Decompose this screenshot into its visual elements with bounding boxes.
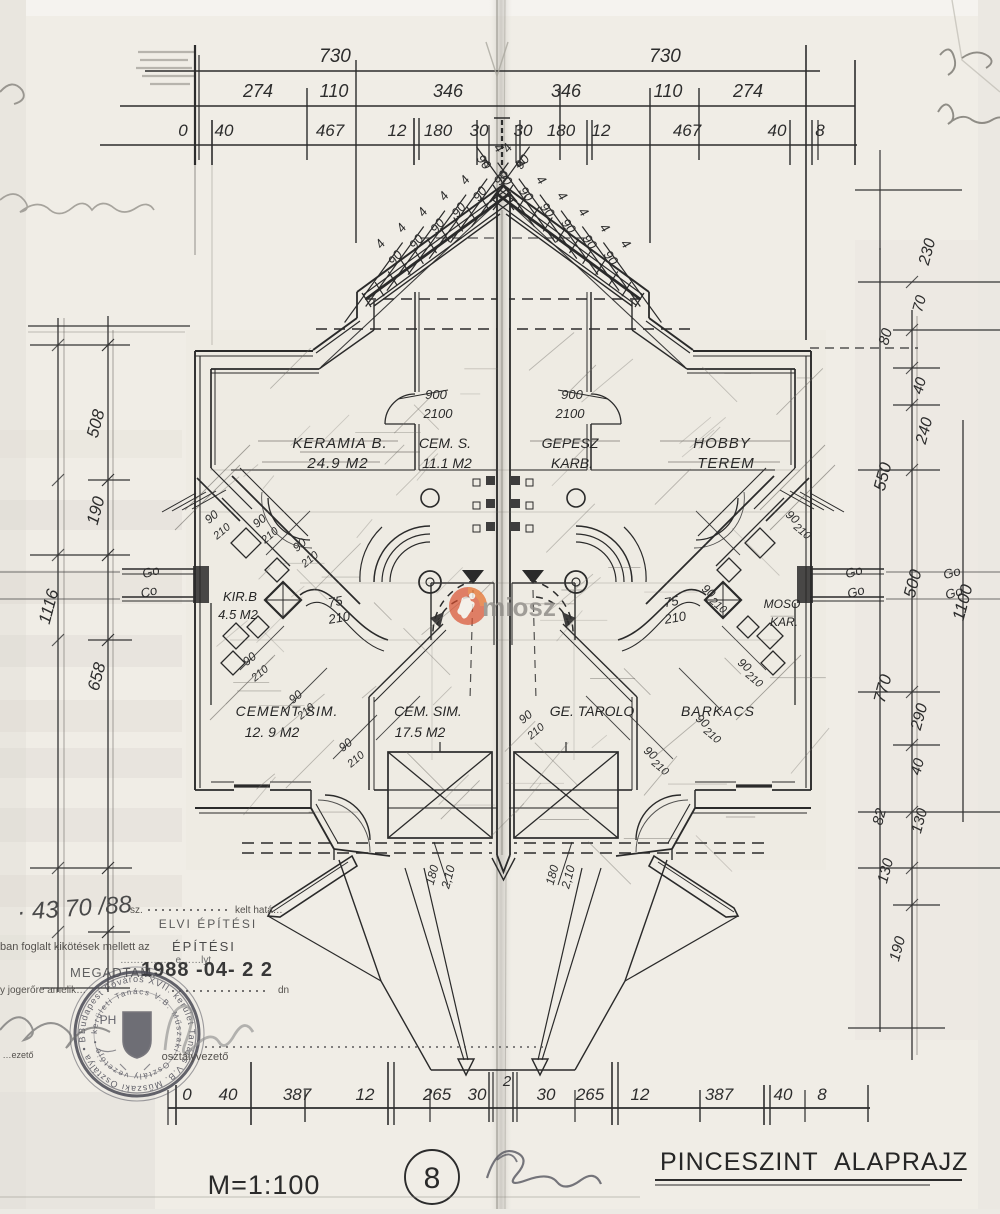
svg-text:110: 110: [654, 81, 683, 101]
svg-text:GEPESZ: GEPESZ: [542, 435, 599, 451]
svg-text:40: 40: [219, 1085, 238, 1104]
svg-text:2100: 2100: [423, 406, 454, 421]
svg-text:346: 346: [551, 81, 582, 101]
svg-text:387: 387: [705, 1085, 734, 1104]
svg-text:30: 30: [468, 1085, 487, 1104]
svg-text:900: 900: [561, 387, 583, 402]
svg-text:467: 467: [673, 121, 702, 140]
svg-text:12: 12: [631, 1085, 650, 1104]
svg-text:8: 8: [817, 1085, 827, 1104]
svg-text:40: 40: [215, 121, 234, 140]
svg-text:274: 274: [732, 81, 763, 101]
svg-text:274: 274: [242, 81, 273, 101]
svg-text:12: 12: [388, 121, 407, 140]
svg-text:y jogerőre amelik…: y jogerőre amelik…: [0, 985, 86, 996]
svg-text:2: 2: [502, 1073, 512, 1090]
svg-text:sz.: sz.: [130, 905, 143, 916]
svg-text:ELVI ÉPÍTÉSI: ELVI ÉPÍTÉSI: [159, 916, 257, 931]
svg-text:11.1 M2: 11.1 M2: [422, 455, 472, 471]
svg-text:KARB.: KARB.: [551, 455, 593, 471]
svg-text:40: 40: [774, 1085, 793, 1104]
svg-text:30: 30: [537, 1085, 556, 1104]
svg-text:…ezető: …ezető: [2, 1050, 33, 1060]
svg-text:8: 8: [424, 1162, 441, 1195]
svg-text:730: 730: [649, 46, 681, 67]
svg-text:265: 265: [575, 1085, 605, 1104]
svg-text:miosz: miosz: [482, 592, 556, 622]
svg-text:4.5 M2: 4.5 M2: [218, 607, 259, 622]
svg-text:12: 12: [356, 1085, 375, 1104]
svg-text:900: 900: [425, 387, 447, 402]
svg-text:KIR.B: KIR.B: [223, 589, 257, 604]
svg-text:dn: dn: [278, 985, 289, 996]
svg-text:kelt hatá…: kelt hatá…: [235, 905, 283, 916]
svg-text:CEM. S.: CEM. S.: [419, 435, 471, 451]
svg-text:ÉPÍTÉSI: ÉPÍTÉSI: [172, 939, 236, 954]
svg-text:0: 0: [182, 1085, 192, 1104]
svg-text:ban foglalt kikötések mellett: ban foglalt kikötések mellett az: [0, 941, 150, 953]
svg-text:osztályvezető: osztályvezető: [162, 1051, 229, 1063]
svg-text:ALAPRAJZ: ALAPRAJZ: [834, 1148, 968, 1176]
svg-text:180: 180: [424, 121, 453, 140]
svg-text:BARKACS: BARKACS: [681, 703, 755, 719]
svg-text:8: 8: [815, 121, 825, 140]
svg-text:KAR.: KAR.: [770, 615, 798, 629]
svg-text:40: 40: [768, 121, 787, 140]
svg-text:CEM. SIM.: CEM. SIM.: [394, 703, 462, 719]
svg-text:GE. TAROLO: GE. TAROLO: [550, 703, 635, 719]
svg-text:180: 180: [547, 121, 576, 140]
svg-text:M=1:100: M=1:100: [208, 1170, 321, 1200]
svg-text:MOSO: MOSO: [764, 597, 801, 611]
svg-text:24.9 M2: 24.9 M2: [306, 455, 368, 472]
svg-text:17.5 M2: 17.5 M2: [395, 724, 446, 740]
svg-text:30: 30: [514, 121, 533, 140]
svg-text:TEREM: TEREM: [697, 455, 755, 472]
svg-text:0: 0: [178, 121, 188, 140]
svg-text:387: 387: [283, 1085, 312, 1104]
svg-text:KERAMIA B.: KERAMIA B.: [292, 435, 387, 452]
svg-text:PINCESZINT: PINCESZINT: [660, 1148, 819, 1176]
svg-text:12. 9 M2: 12. 9 M2: [245, 724, 300, 740]
svg-text:730: 730: [319, 46, 351, 67]
svg-text:265: 265: [422, 1085, 452, 1104]
svg-text:2100: 2100: [555, 406, 586, 421]
svg-text:467: 467: [316, 121, 345, 140]
svg-text:30: 30: [470, 121, 489, 140]
svg-text:110: 110: [320, 81, 349, 101]
svg-text:12: 12: [592, 121, 611, 140]
svg-text:346: 346: [433, 81, 464, 101]
